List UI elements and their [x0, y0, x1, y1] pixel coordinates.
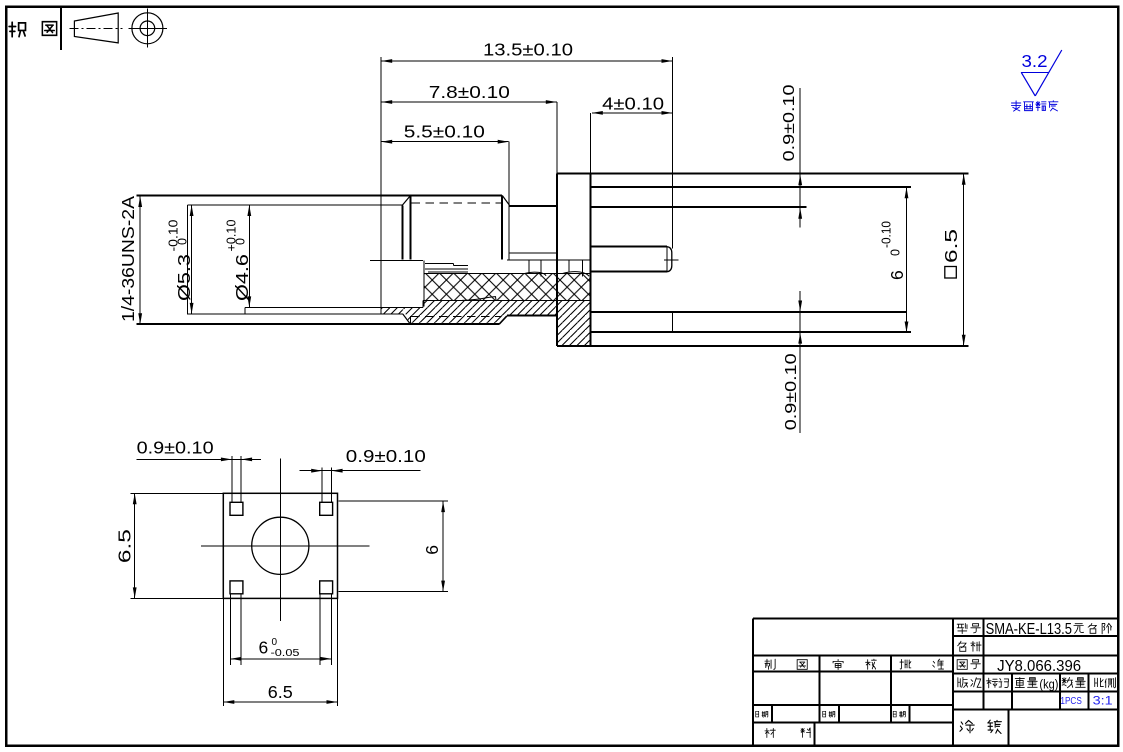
svg-text:SMA-KE-L13.5: SMA-KE-L13.5	[986, 621, 1072, 638]
svg-text:0: 0	[272, 637, 278, 648]
svg-text:6: 6	[887, 270, 907, 280]
svg-text:1/4-36UNS-2A: 1/4-36UNS-2A	[118, 196, 138, 322]
svg-text:(kg): (kg)	[1039, 678, 1058, 692]
svg-text:-0.10: -0.10	[167, 219, 181, 251]
svg-text:13.5±0.10: 13.5±0.10	[483, 39, 573, 59]
svg-text:0.9±0.10: 0.9±0.10	[783, 353, 800, 430]
svg-text:Ø5.3: Ø5.3	[174, 254, 194, 301]
svg-text:6: 6	[259, 638, 269, 658]
svg-text:1PCS: 1PCS	[1060, 696, 1082, 707]
svg-text:0: 0	[233, 238, 247, 245]
svg-text:-0.10: -0.10	[880, 221, 894, 248]
svg-text:0.9±0.10: 0.9±0.10	[137, 438, 214, 458]
svg-text:6.5: 6.5	[268, 682, 293, 702]
svg-text:6.5: 6.5	[115, 529, 135, 563]
svg-text:0: 0	[889, 249, 903, 256]
svg-text:3.2: 3.2	[1022, 51, 1048, 71]
svg-text:0: 0	[176, 238, 190, 245]
svg-text:6: 6	[422, 545, 442, 555]
svg-text:Ø4.6: Ø4.6	[232, 254, 252, 301]
svg-text:JY8.066.396: JY8.066.396	[997, 658, 1081, 675]
svg-text:7.8±0.10: 7.8±0.10	[429, 82, 510, 102]
svg-text:-0.05: -0.05	[271, 648, 301, 659]
svg-text:6.5: 6.5	[941, 229, 961, 263]
svg-text:0.9±0.10: 0.9±0.10	[781, 84, 798, 161]
svg-text:4±0.10: 4±0.10	[602, 94, 664, 114]
svg-text:3:1: 3:1	[1093, 696, 1113, 708]
svg-text:5.5±0.10: 5.5±0.10	[404, 122, 485, 142]
svg-text:0.9±0.10: 0.9±0.10	[346, 446, 426, 466]
svg-text:+0.10: +0.10	[224, 219, 238, 251]
